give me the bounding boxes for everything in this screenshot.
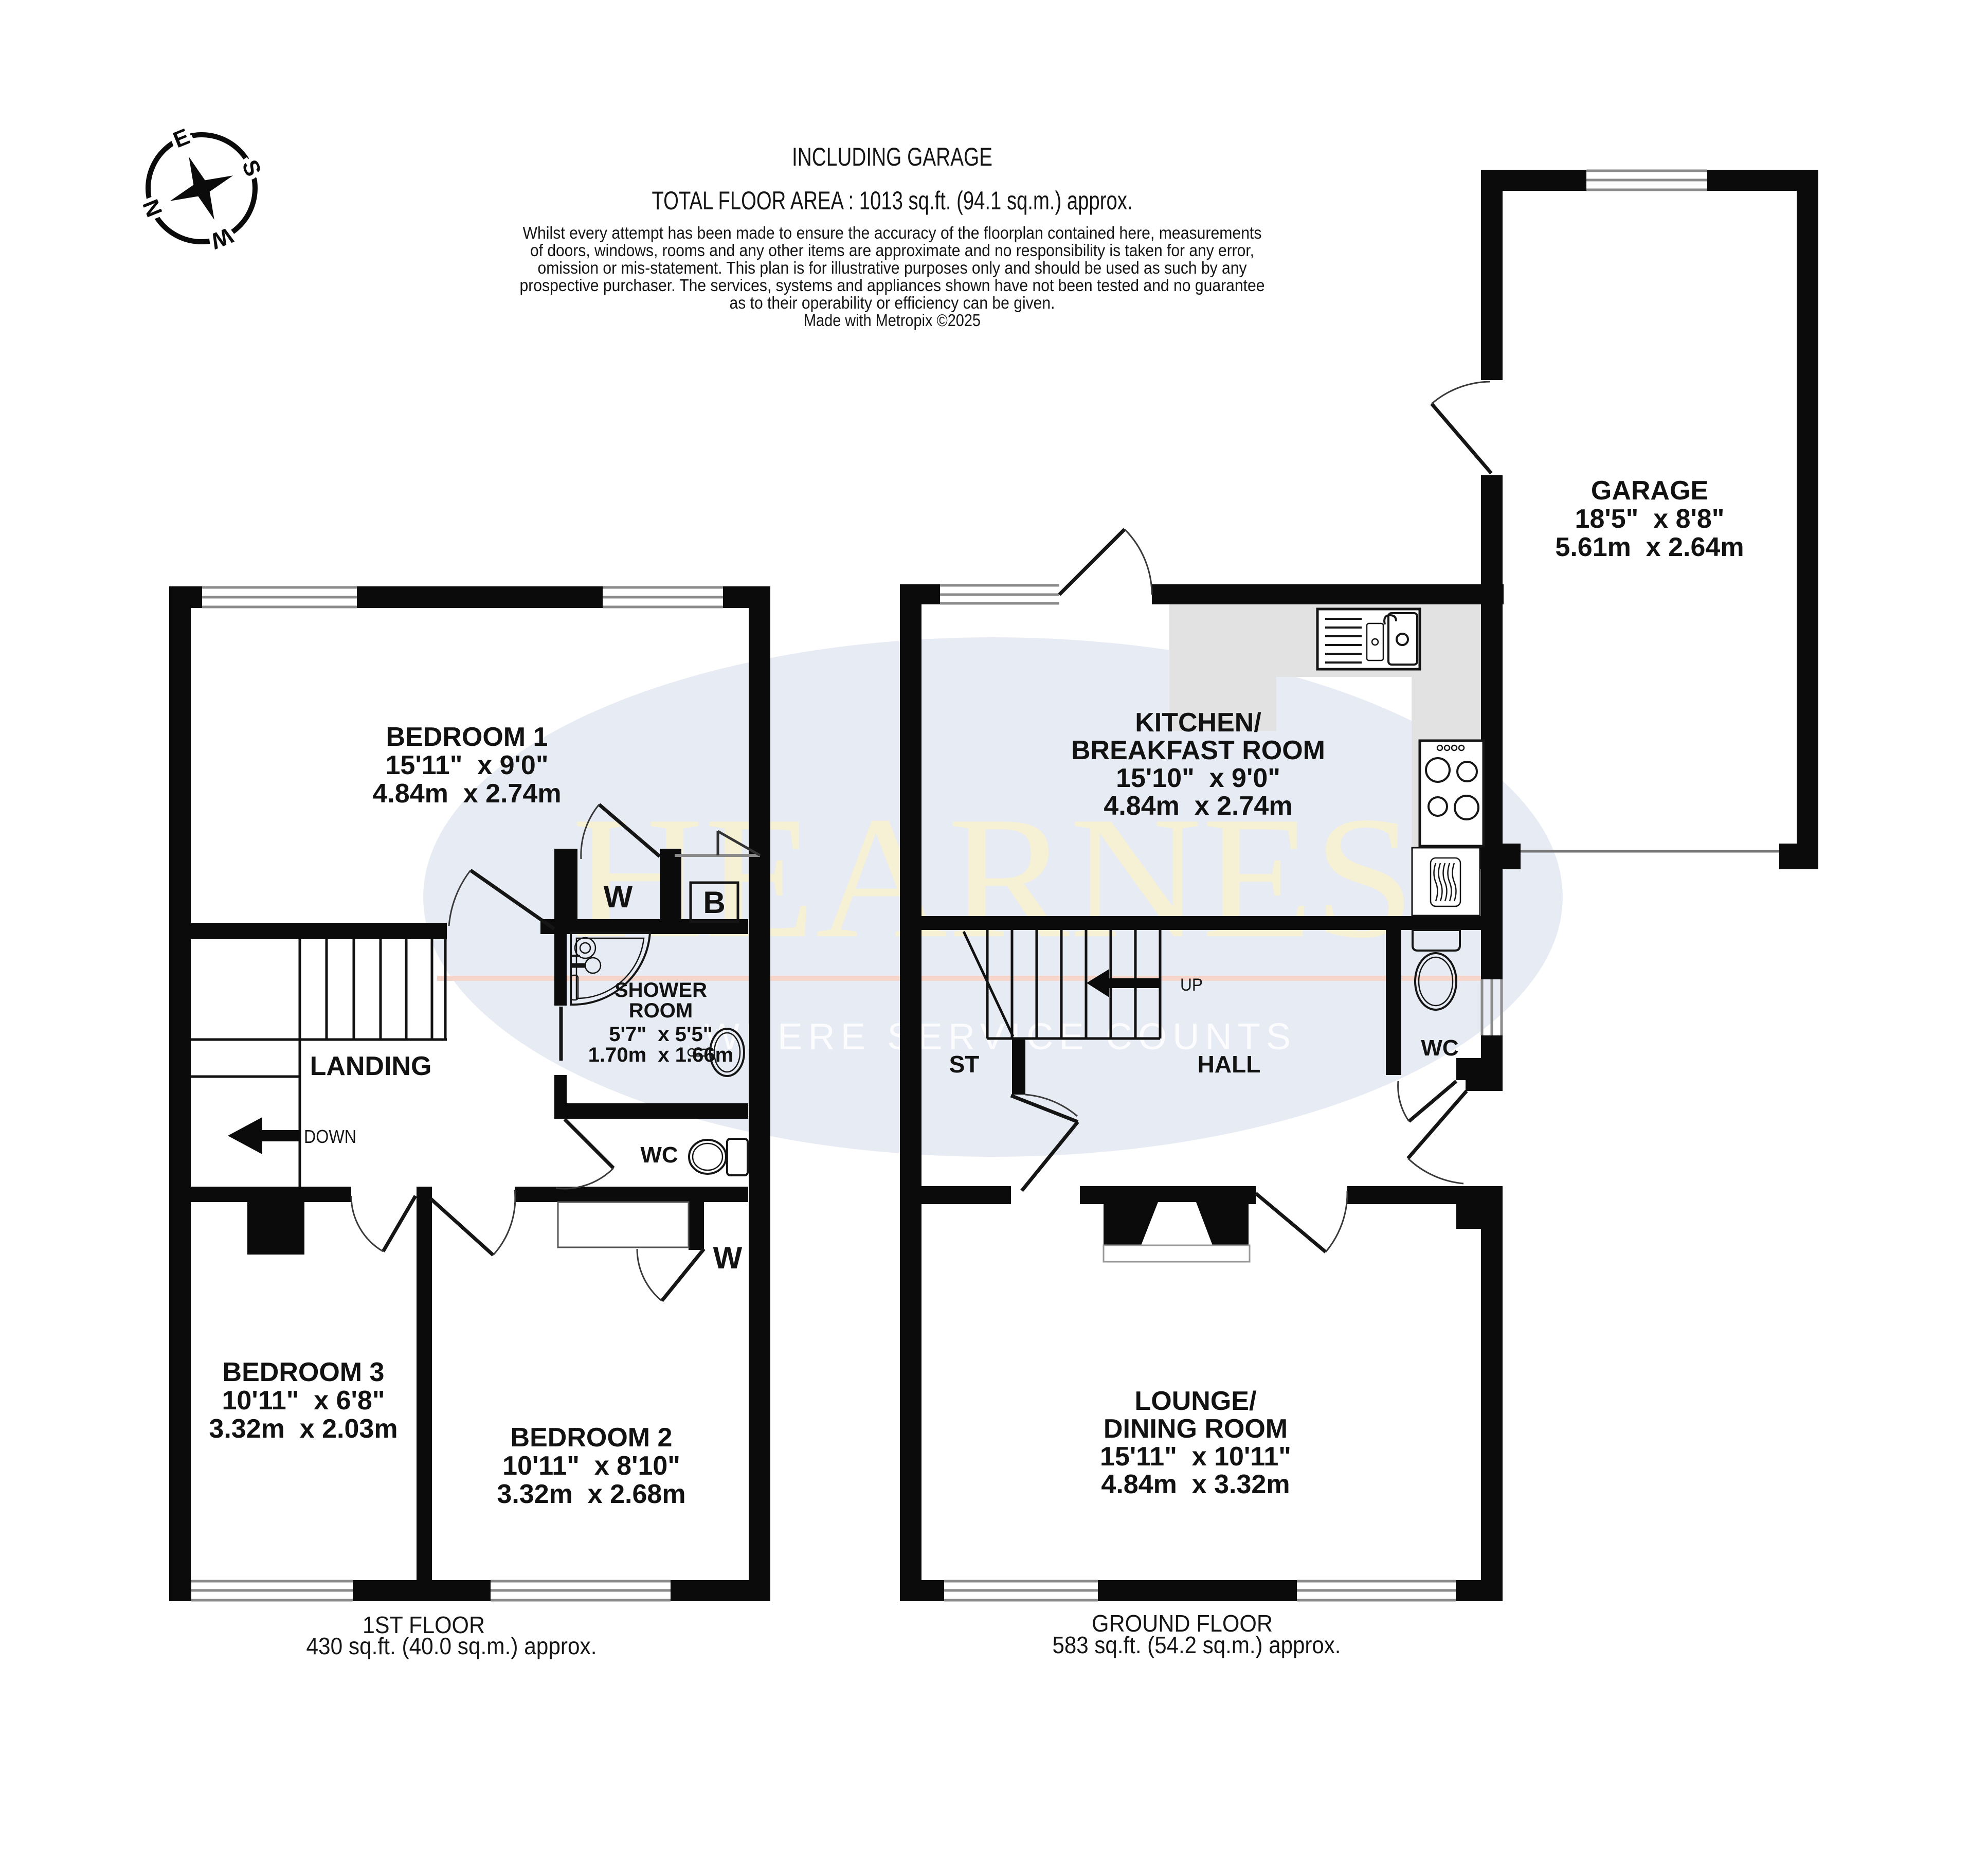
svg-text:WC: WC (1421, 1035, 1458, 1061)
svg-text:BREAKFAST ROOM: BREAKFAST ROOM (1071, 736, 1325, 765)
svg-text:as to their operability or eff: as to their operability or efficiency ca… (730, 293, 1055, 312)
svg-text:WC: WC (640, 1142, 678, 1168)
svg-text:of doors, windows, rooms and a: of doors, windows, rooms and any other i… (530, 241, 1254, 260)
svg-text:15'11" x 10'11": 15'11" x 10'11" (1100, 1442, 1291, 1472)
svg-text:1.70m x 1.66m: 1.70m x 1.66m (588, 1044, 733, 1066)
svg-text:INCLUDING GARAGE: INCLUDING GARAGE (792, 142, 992, 171)
svg-text:ST: ST (949, 1051, 980, 1078)
svg-text:LANDING: LANDING (310, 1051, 432, 1081)
svg-text:KITCHEN/: KITCHEN/ (1135, 708, 1261, 738)
svg-text:GARAGE: GARAGE (1591, 476, 1708, 506)
svg-text:W: W (713, 1241, 743, 1275)
svg-text:BEDROOM 1: BEDROOM 1 (386, 722, 548, 752)
svg-text:18'5" x 8'8": 18'5" x 8'8" (1575, 504, 1725, 534)
svg-text:prospective purchaser. The ser: prospective purchaser. The services, sys… (520, 276, 1265, 295)
svg-text:DOWN: DOWN (304, 1126, 356, 1147)
svg-text:3.32m x 2.68m: 3.32m x 2.68m (497, 1479, 685, 1509)
svg-text:Whilst every attempt has been: Whilst every attempt has been made to en… (523, 223, 1262, 242)
svg-text:4.84m x 2.74m: 4.84m x 2.74m (372, 779, 561, 809)
svg-text:430 sq.ft. (40.0 sq.m.) approx: 430 sq.ft. (40.0 sq.m.) approx. (306, 1633, 597, 1659)
svg-text:3.32m x 2.03m: 3.32m x 2.03m (209, 1414, 397, 1444)
svg-text:HALL: HALL (1198, 1051, 1261, 1078)
svg-text:DINING ROOM: DINING ROOM (1104, 1414, 1288, 1444)
svg-text:B: B (703, 885, 725, 920)
svg-text:W: W (604, 880, 633, 914)
svg-text:UP: UP (1180, 975, 1203, 995)
svg-text:5'7" x 5'5": 5'7" x 5'5" (609, 1023, 713, 1046)
svg-text:5.61m x 2.64m: 5.61m x 2.64m (1555, 532, 1744, 562)
svg-text:10'11" x 6'8": 10'11" x 6'8" (222, 1386, 385, 1416)
svg-text:Made with Metropix ©2025: Made with Metropix ©2025 (804, 311, 981, 330)
svg-text:SHOWER: SHOWER (615, 979, 707, 1001)
svg-text:BEDROOM 2: BEDROOM 2 (511, 1423, 673, 1453)
svg-text:LOUNGE/: LOUNGE/ (1135, 1386, 1257, 1416)
svg-text:omission or mis-statement. Thi: omission or mis-statement. This plan is … (538, 258, 1247, 277)
svg-text:ROOM: ROOM (629, 999, 693, 1022)
svg-text:BEDROOM 3: BEDROOM 3 (223, 1357, 385, 1387)
svg-text:4.84m x 3.32m: 4.84m x 3.32m (1101, 1470, 1290, 1499)
svg-text:TOTAL FLOOR AREA : 1013 sq.ft.: TOTAL FLOOR AREA : 1013 sq.ft. (94.1 sq.… (652, 186, 1133, 215)
svg-text:15'11" x 9'0": 15'11" x 9'0" (386, 750, 549, 780)
svg-text:15'10" x 9'0": 15'10" x 9'0" (1116, 763, 1280, 793)
svg-text:4.84m x 2.74m: 4.84m x 2.74m (1104, 791, 1292, 821)
svg-text:10'11" x 8'10": 10'11" x 8'10" (502, 1451, 680, 1481)
svg-text:583 sq.ft. (54.2 sq.m.) approx: 583 sq.ft. (54.2 sq.m.) approx. (1053, 1632, 1341, 1658)
